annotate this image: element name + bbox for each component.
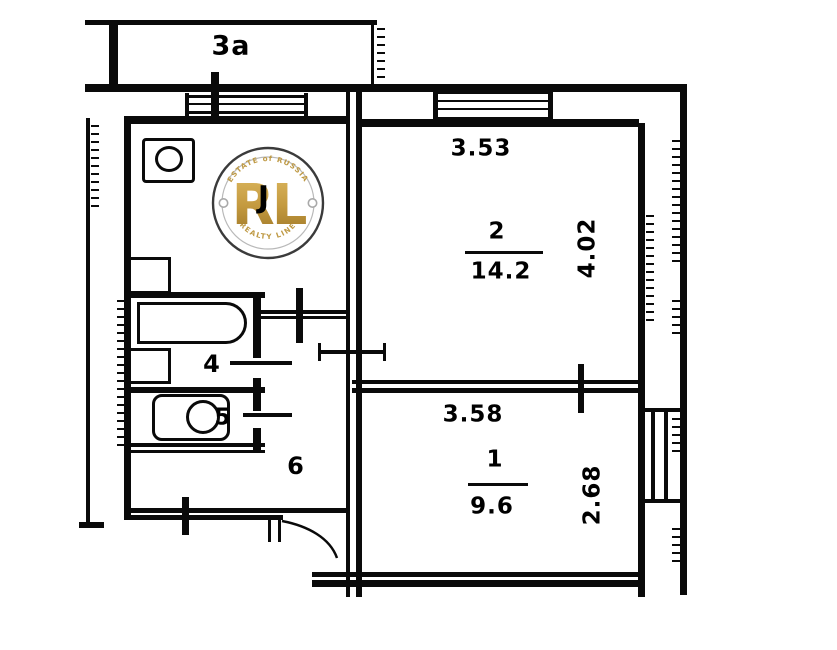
door-opening-tick <box>383 343 386 361</box>
room-2-area-label: 14.2 <box>471 261 532 284</box>
room-2-number-label: 2 <box>488 221 505 244</box>
wall <box>124 450 265 453</box>
door-opening-tick <box>296 288 303 343</box>
stamp-side-dot <box>308 199 316 207</box>
wall <box>85 20 377 25</box>
fraction-line <box>465 251 543 254</box>
door-jamb <box>278 520 281 542</box>
washbasin-icon <box>128 348 171 384</box>
window-icon <box>189 103 304 105</box>
wall <box>680 88 687 595</box>
fraction-line <box>468 483 528 486</box>
wall <box>124 443 265 447</box>
vent-shaft-icon <box>128 257 171 294</box>
wall <box>79 522 104 528</box>
wall <box>109 22 118 90</box>
door-opening-tick <box>318 343 321 361</box>
room-2-width-label: 3.53 <box>451 138 512 161</box>
wall <box>85 84 687 92</box>
window-icon <box>645 499 680 503</box>
wall <box>352 388 638 393</box>
covered-room-label: J <box>258 183 270 213</box>
hatch-marks <box>377 28 385 88</box>
wall <box>359 119 639 127</box>
window-icon <box>438 91 548 94</box>
window-icon <box>189 111 304 114</box>
window-icon <box>189 95 304 98</box>
window-icon <box>651 412 655 499</box>
window-icon <box>438 108 548 110</box>
bathtub-icon <box>137 302 247 344</box>
door-opening-tick <box>578 364 584 413</box>
wall <box>312 580 640 587</box>
hatch-marks <box>672 418 680 458</box>
door-opening-tick <box>243 413 292 417</box>
wall <box>352 380 638 384</box>
door-opening-tick <box>230 361 292 365</box>
wall <box>638 123 645 597</box>
hatch-marks <box>646 215 654 325</box>
hatch-marks <box>672 528 680 563</box>
bathroom-number-label: 4 <box>203 352 221 376</box>
wall <box>371 25 374 90</box>
wall <box>346 92 350 597</box>
hatch-marks <box>672 300 680 338</box>
wall <box>124 508 347 513</box>
hatch-marks <box>91 125 99 210</box>
wall <box>124 120 131 518</box>
stamp-side-dot <box>219 199 227 207</box>
wall <box>253 298 261 358</box>
wall <box>356 92 362 597</box>
wall <box>253 393 261 411</box>
room-2-depth-label: 4.02 <box>577 218 600 279</box>
hatch-marks <box>117 300 125 450</box>
room-1-depth-label: 2.68 <box>582 465 605 526</box>
wall <box>312 572 640 577</box>
sink-icon <box>155 146 183 172</box>
wall <box>124 387 265 393</box>
hallway-number-label: 6 <box>287 454 305 478</box>
door-opening-tick <box>182 497 189 535</box>
hatch-marks <box>672 140 680 265</box>
window-icon <box>664 412 668 499</box>
room-1-number-label: 1 <box>486 449 503 472</box>
door-jamb <box>268 520 271 542</box>
room-1-width-label: 3.58 <box>443 404 504 427</box>
balcony-label: 3a <box>211 33 250 60</box>
wall <box>124 515 283 520</box>
door-opening-tick <box>320 350 386 354</box>
wall <box>124 116 348 124</box>
window-icon <box>438 100 548 102</box>
floor-plan-scan: 3a 3.53 2 14.2 4.02 3.58 1 9.6 2.68 4 5 … <box>0 0 837 650</box>
toilet-number-label: 5 <box>214 407 231 430</box>
wall <box>253 428 261 452</box>
room-1-area-label: 9.6 <box>470 496 514 519</box>
wall <box>86 118 90 528</box>
